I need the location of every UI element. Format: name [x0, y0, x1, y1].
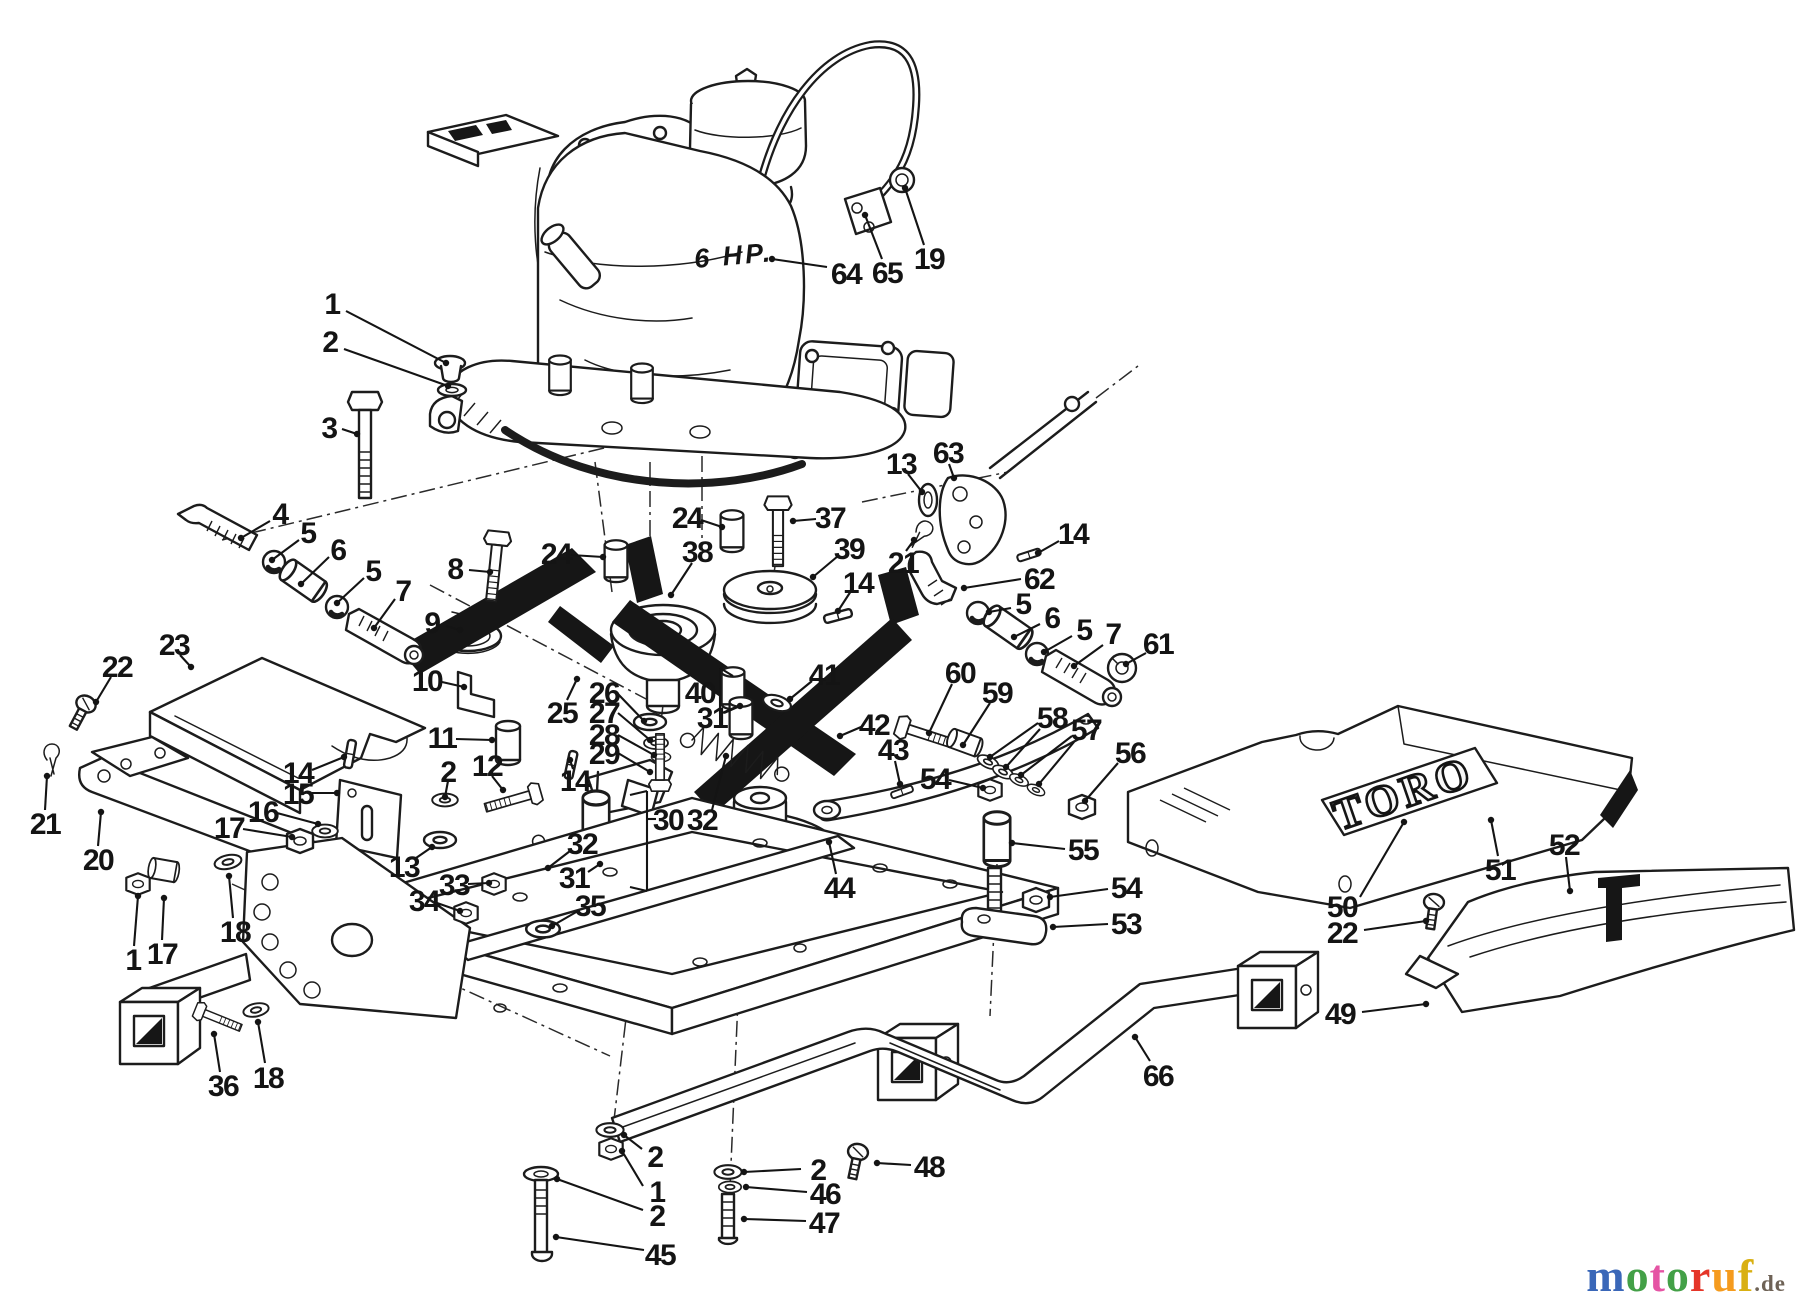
leader-dot [98, 809, 104, 815]
leader-dot [341, 754, 347, 760]
leader-dot [255, 1019, 261, 1025]
callout-18: 18 [220, 916, 251, 949]
leader-dot [837, 733, 843, 739]
leader-dot [371, 625, 377, 631]
callout-9: 9 [424, 607, 440, 640]
leader-dot [554, 1176, 560, 1182]
leader-dot [961, 585, 967, 591]
leader-dot [897, 781, 903, 787]
callout-63: 63 [933, 437, 964, 470]
callout-2: 2 [649, 1200, 665, 1233]
leader-line [929, 684, 952, 733]
leader-dot [298, 581, 304, 587]
leader-dot [986, 609, 992, 615]
callout-12: 12 [472, 750, 503, 783]
washer-18 [242, 1001, 270, 1019]
callout-33: 33 [439, 869, 470, 902]
leader-dot [621, 1132, 627, 1138]
leader-dot [790, 518, 796, 524]
leader-dot [951, 475, 957, 481]
leader-dot [188, 664, 194, 670]
leader-dot [553, 1234, 559, 1240]
callout-5: 5 [1015, 588, 1031, 621]
leader-line [1044, 636, 1072, 652]
leader-dot [1035, 550, 1041, 556]
leader-dot [269, 557, 275, 563]
leader-dot [315, 821, 321, 827]
callout-4: 4 [272, 498, 289, 531]
watermark-letter: r [1690, 1250, 1711, 1301]
callout-14: 14 [1058, 518, 1090, 551]
callout-2: 2 [322, 326, 338, 359]
leader-line [456, 739, 492, 740]
callout-10: 10 [412, 665, 443, 698]
leader-dot [960, 742, 966, 748]
leader-dot [545, 865, 551, 871]
callout-13: 13 [389, 851, 420, 884]
callout-41: 41 [809, 659, 840, 692]
callout-55: 55 [1068, 834, 1099, 867]
leader-line [1074, 645, 1103, 666]
leader-dot [1423, 1001, 1429, 1007]
leader-line [964, 579, 1021, 588]
leader-dot [741, 1216, 747, 1222]
callout-23: 23 [159, 629, 190, 662]
leader-dot [862, 212, 868, 218]
callout-29: 29 [589, 738, 620, 771]
spacer-24 [721, 510, 744, 552]
leader-dot [902, 185, 908, 191]
leader-dot [874, 1160, 880, 1166]
leader-dot [574, 676, 580, 682]
washer-2 [714, 1165, 741, 1179]
rod-7-right [1042, 650, 1121, 706]
leader-dot [445, 383, 451, 389]
callout-1: 1 [324, 288, 340, 321]
leader-dot [668, 592, 674, 598]
leader-dot [457, 908, 463, 914]
rod-7-left [346, 609, 423, 664]
leader-dot [647, 769, 653, 775]
leader-dot [226, 873, 232, 879]
leader-line [45, 776, 47, 810]
leader-line [1362, 1004, 1426, 1012]
leader-dot [719, 524, 725, 530]
callout-49: 49 [1325, 998, 1356, 1031]
nut-17 [287, 829, 313, 853]
leader-dot [500, 787, 506, 793]
callout-18: 18 [253, 1062, 284, 1095]
leader-dot [211, 1031, 217, 1037]
leader-dot [835, 608, 841, 614]
screw-22 [64, 692, 98, 732]
leader-line [162, 898, 164, 940]
bushing-18 [213, 853, 242, 872]
callout-53: 53 [1111, 908, 1142, 941]
callout-48: 48 [914, 1151, 945, 1184]
leader-dot [737, 703, 743, 709]
leader-line [277, 813, 318, 824]
bolt-37 [764, 496, 791, 566]
callout-58: 58 [1037, 702, 1068, 735]
callout-54: 54 [1111, 872, 1143, 905]
leader-line [701, 520, 722, 527]
leader-dot [1123, 661, 1129, 667]
callout-5: 5 [300, 517, 316, 550]
callout-22: 22 [102, 651, 133, 684]
caster-socket-right [1238, 952, 1318, 1028]
leader-dot [741, 1169, 747, 1175]
callout-6: 6 [1044, 602, 1060, 635]
leader-line [337, 578, 364, 603]
leader-dot [1041, 649, 1047, 655]
callout-34: 34 [409, 885, 441, 918]
callout-32: 32 [567, 828, 598, 861]
nut-54 [1023, 888, 1049, 912]
callout-5: 5 [365, 555, 381, 588]
leader-dot [1567, 888, 1573, 894]
leader-dot [1401, 819, 1407, 825]
nut-56 [1069, 795, 1095, 819]
leader-line [344, 349, 448, 386]
leader-dot [597, 861, 603, 867]
callout-56: 56 [1115, 737, 1146, 770]
pulley-39 [724, 571, 816, 623]
leader-dot [1050, 924, 1056, 930]
callout-43: 43 [878, 734, 909, 767]
discharge-deflector-49-52 [1406, 868, 1794, 1012]
leader-line [556, 1237, 644, 1250]
leader-dot [489, 737, 495, 743]
caster-socket-left [120, 988, 200, 1064]
leader-dot [911, 537, 917, 543]
callout-65: 65 [872, 257, 903, 290]
leader-line [98, 812, 101, 846]
callout-66: 66 [1143, 1060, 1174, 1093]
leader-dot [135, 893, 141, 899]
leader-dot [1047, 894, 1053, 900]
cotter-pin-21 [44, 744, 59, 776]
ball-joint-5 [326, 596, 348, 618]
callout-30: 30 [653, 804, 684, 837]
leader-line [214, 1034, 220, 1072]
leader-dot [810, 574, 816, 580]
leader-dot [334, 600, 340, 606]
leader-line [1364, 921, 1426, 930]
watermark-letter: m [1586, 1250, 1625, 1301]
callout-6: 6 [330, 534, 346, 567]
leader-dot [334, 790, 340, 796]
callout-2: 2 [440, 756, 456, 789]
callout-31: 31 [697, 702, 728, 735]
callout-1: 1 [125, 944, 141, 977]
callout-17: 17 [214, 812, 245, 845]
callout-47: 47 [809, 1207, 840, 1240]
bolt-45 [524, 1167, 558, 1261]
leader-line [134, 896, 138, 946]
callout-60: 60 [945, 657, 976, 690]
leader-dot [1132, 1034, 1138, 1040]
callout-61: 61 [1143, 628, 1174, 661]
nut-1 [126, 873, 149, 895]
callout-7: 7 [1105, 618, 1121, 651]
callout-21: 21 [30, 808, 61, 841]
leader-line [557, 1179, 643, 1210]
watermark-letter: f [1738, 1250, 1754, 1301]
washer-35 [526, 921, 560, 938]
parts-diagram-page: 6 HP. [0, 0, 1800, 1303]
leader-line [1135, 1037, 1150, 1061]
callout-14: 14 [560, 765, 592, 798]
leader-dot [443, 360, 449, 366]
lockwasher-46 [719, 1181, 741, 1192]
leader-line [229, 876, 233, 918]
watermark-letter: o [1626, 1250, 1650, 1301]
callout-45: 45 [645, 1239, 676, 1272]
bracket-10 [458, 672, 494, 717]
leader-line [1085, 763, 1118, 801]
leader-dot [600, 554, 606, 560]
leader-line [258, 1022, 265, 1063]
callout-38: 38 [682, 536, 713, 569]
callout-11: 11 [428, 722, 458, 755]
leader-dot [1071, 663, 1077, 669]
leader-dot [723, 753, 729, 759]
part-oil-fill [549, 356, 571, 396]
leader-dot [619, 1148, 625, 1154]
leader-dot [44, 773, 50, 779]
spacer-24 [605, 540, 628, 582]
leader-dot [354, 431, 360, 437]
leader-dot [461, 684, 467, 690]
leader-line [622, 1151, 643, 1186]
callout-22: 22 [1327, 917, 1358, 950]
leader-line [793, 519, 816, 521]
callout-24: 24 [541, 538, 573, 571]
callout-7: 7 [395, 575, 411, 608]
leader-dot [769, 256, 775, 262]
leader-dot [1082, 798, 1088, 804]
leader-dot [743, 1184, 749, 1190]
callout-3: 3 [321, 412, 337, 445]
leader-line [877, 1163, 911, 1165]
callout-19: 19 [914, 243, 945, 276]
leader-dot [457, 627, 463, 633]
leader-line [744, 1169, 801, 1172]
leader-dot [549, 923, 555, 929]
leader-line [746, 1187, 807, 1192]
callout-15: 15 [283, 778, 314, 811]
watermark-letter: t [1650, 1250, 1666, 1301]
screw-22-right [1420, 893, 1445, 930]
callout-59: 59 [982, 677, 1013, 710]
leader-line [1038, 541, 1059, 553]
callout-14: 14 [843, 567, 875, 600]
leader-dot [1003, 764, 1009, 770]
callout-44: 44 [824, 872, 856, 905]
callout-31: 31 [559, 862, 590, 895]
callout-54: 54 [920, 763, 952, 796]
leader-dot [93, 699, 99, 705]
leader-dot [787, 696, 793, 702]
leader-dot [238, 535, 244, 541]
leader-dot [980, 785, 986, 791]
leader-line [744, 1219, 806, 1221]
leader-dot [1036, 781, 1042, 787]
leader-dot [487, 569, 493, 575]
watermark-letter: o [1666, 1250, 1690, 1301]
leader-line [1053, 924, 1108, 927]
leader-dot [442, 794, 448, 800]
exploded-parts-diagram: 6 HP. [0, 0, 1800, 1303]
callout-51: 51 [1485, 854, 1516, 887]
leader-dot [1423, 918, 1429, 924]
callout-20: 20 [83, 844, 114, 877]
callout-64: 64 [831, 258, 863, 291]
washer-2 [596, 1123, 623, 1137]
leader-dot [926, 730, 932, 736]
callout-16: 16 [248, 796, 279, 829]
callout-32: 32 [687, 804, 718, 837]
spacer-55 [984, 812, 1010, 867]
leader-dot [641, 718, 647, 724]
callout-37: 37 [815, 502, 846, 535]
leader-dot [1011, 634, 1017, 640]
callout-24: 24 [672, 502, 704, 535]
watermark: motoruf.de [1586, 1253, 1786, 1299]
leader-dot [987, 754, 993, 760]
rod-4 [178, 505, 257, 550]
callout-8: 8 [447, 553, 463, 586]
leader-dot [1018, 772, 1024, 778]
callout-39: 39 [834, 533, 865, 566]
leader-dot [919, 489, 925, 495]
leader-dot [651, 752, 657, 758]
leader-dot [1488, 817, 1494, 823]
nut-1 [599, 1138, 622, 1160]
callout-5: 5 [1076, 614, 1092, 647]
leader-dot [567, 757, 573, 763]
washer-61 [1108, 654, 1136, 682]
watermark-letter: u [1711, 1250, 1738, 1301]
leader-dot [289, 834, 295, 840]
watermark-suffix: .de [1754, 1271, 1786, 1296]
part-oil-fill [631, 364, 653, 404]
screw-48 [843, 1142, 870, 1180]
leader-dot [429, 844, 435, 850]
bushing-17 [147, 857, 181, 882]
washer-13-right [919, 484, 937, 516]
callout-17: 17 [147, 938, 178, 971]
bolt-47 [719, 1194, 737, 1244]
leader-dot [161, 895, 167, 901]
leader-dot [486, 880, 492, 886]
callout-21: 21 [888, 547, 919, 580]
leader-dot [826, 839, 832, 845]
bolt-12 [483, 781, 544, 818]
callout-2: 2 [647, 1141, 663, 1174]
callout-57: 57 [1071, 714, 1102, 747]
callout-25: 25 [547, 697, 578, 730]
callout-52: 52 [1549, 829, 1580, 862]
bolt-3 [348, 392, 382, 498]
leader-dot [647, 737, 653, 743]
leader-dot [1009, 840, 1015, 846]
callout-13: 13 [886, 448, 917, 481]
leader-line [1012, 843, 1065, 849]
washer-13 [424, 832, 456, 848]
leader-line [905, 188, 924, 245]
callout-36: 36 [208, 1070, 239, 1103]
